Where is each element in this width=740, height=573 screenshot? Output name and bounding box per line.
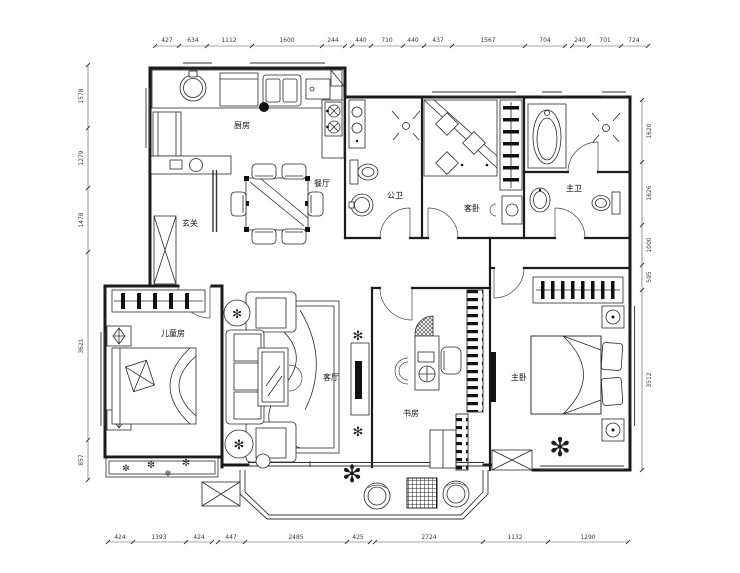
dim-top-11: 240 bbox=[574, 37, 586, 44]
guest-wardrobe bbox=[500, 100, 522, 190]
balcony-column-right bbox=[492, 450, 532, 470]
plant-icon: ✻ bbox=[342, 460, 362, 488]
room-dining: 餐厅 玄关 bbox=[182, 164, 330, 244]
floor-plan-page: 427 634 1112 1600 244 440 710 440 437 15… bbox=[0, 0, 740, 573]
kids-wardrobe bbox=[112, 290, 205, 312]
dimension-top: 427 634 1112 1600 244 440 710 440 437 15… bbox=[153, 37, 650, 48]
dimension-bottom: 424 1393 424 447 2485 425 2724 1132 1290 bbox=[106, 534, 630, 544]
dim-top-0: 427 bbox=[161, 37, 173, 44]
kitchen-cabinet bbox=[220, 73, 258, 106]
label-kitchen: 厨房 bbox=[234, 120, 250, 130]
plant-icon: ✻ bbox=[353, 329, 364, 344]
dim-left-4: 857 bbox=[78, 454, 85, 466]
master-nightstand-bottom bbox=[602, 419, 624, 441]
floor-plan-canvas: 427 634 1112 1600 244 440 710 440 437 15… bbox=[0, 0, 740, 573]
master-wardrobe bbox=[533, 277, 623, 303]
basin bbox=[349, 194, 373, 216]
dim-top-3: 1600 bbox=[279, 37, 294, 44]
flower-icon: ✼ bbox=[147, 460, 155, 471]
dim-right-2: 1000 bbox=[646, 237, 653, 252]
bathtub bbox=[528, 104, 566, 168]
label-entry: 玄关 bbox=[182, 218, 198, 228]
master-bed bbox=[531, 336, 623, 414]
armchair-bottom bbox=[246, 422, 296, 462]
kids-bed bbox=[112, 348, 196, 424]
dim-right-1: 1626 bbox=[646, 185, 653, 200]
fridge bbox=[153, 112, 181, 156]
guest-dresser bbox=[490, 196, 522, 224]
dim-bottom-1: 1393 bbox=[151, 534, 166, 541]
dim-top-12: 701 bbox=[599, 37, 611, 44]
room-study: 书房 bbox=[395, 290, 483, 470]
dim-bottom-0: 424 bbox=[114, 534, 126, 541]
dim-top-9: 1567 bbox=[480, 37, 495, 44]
kitchen-double-sink bbox=[263, 75, 301, 106]
room-living: ✻ ✻ ✻ ✻ ✻ 客厅 bbox=[224, 292, 369, 488]
dim-bottom-3: 447 bbox=[225, 534, 237, 541]
master-basin bbox=[530, 188, 550, 212]
flower-icon: ✼ bbox=[182, 458, 190, 469]
label-living: 客厅 bbox=[323, 372, 339, 382]
balcony-table bbox=[407, 478, 437, 508]
dim-top-6: 710 bbox=[381, 37, 393, 44]
room-kids: 儿童房 ✼ ✼ ✼ ✼ bbox=[107, 290, 205, 478]
entry-screen bbox=[213, 170, 217, 232]
dim-bottom-7: 1132 bbox=[507, 534, 522, 541]
dim-bottom-8: 1290 bbox=[580, 534, 595, 541]
dim-top-7: 440 bbox=[407, 37, 419, 44]
dim-right-4: 3512 bbox=[646, 372, 653, 387]
dim-top-1: 634 bbox=[187, 37, 199, 44]
label-dining: 餐厅 bbox=[314, 179, 330, 188]
entry-shaft bbox=[154, 216, 176, 284]
room-master-bedroom: ✻ 主卧 bbox=[491, 277, 624, 463]
dim-bottom-6: 2724 bbox=[421, 534, 436, 541]
room-guest-bath: 公卫 bbox=[349, 100, 420, 216]
plant-icon: ✻ bbox=[549, 433, 571, 463]
bookshelf bbox=[467, 290, 483, 412]
dim-right-0: 1620 bbox=[646, 123, 653, 138]
dimension-left: 1578 1279 1478 3621 857 bbox=[78, 63, 90, 482]
flower-icon: ✼ bbox=[122, 464, 130, 474]
dim-top-13: 724 bbox=[628, 37, 640, 44]
dim-top-2: 1112 bbox=[221, 37, 236, 44]
toilet bbox=[350, 160, 378, 184]
side-table-top: ✻ bbox=[224, 300, 250, 326]
dim-top-8: 437 bbox=[432, 37, 444, 44]
wall-tv bbox=[491, 352, 496, 402]
label-master-bath: 主卫 bbox=[566, 183, 582, 193]
dim-bottom-5: 425 bbox=[352, 534, 364, 541]
shower-icon-master bbox=[592, 113, 620, 142]
dim-top-4: 244 bbox=[327, 37, 339, 44]
dimension-right: 1620 1626 1000 595 3512 bbox=[640, 98, 653, 472]
plant-icon: ✻ bbox=[234, 438, 245, 453]
dim-left-2: 1478 bbox=[78, 212, 85, 227]
room-guest-bedroom: 客卧 bbox=[424, 100, 522, 224]
balcony-chair-left bbox=[364, 483, 390, 509]
shower-icon bbox=[392, 111, 420, 140]
study-shelf-strip bbox=[456, 414, 468, 470]
master-toilet bbox=[592, 192, 620, 214]
tv-bench bbox=[351, 343, 369, 415]
room-master-bath: 主卫 bbox=[528, 104, 620, 214]
flower-icon: ✼ bbox=[165, 469, 172, 478]
kitchen-faucet bbox=[259, 102, 269, 112]
dim-left-1: 1279 bbox=[78, 150, 85, 165]
master-nightstand-top bbox=[602, 306, 624, 328]
dim-left-3: 3621 bbox=[78, 338, 85, 353]
dim-top-10: 704 bbox=[539, 37, 551, 44]
plant-icon: ✻ bbox=[232, 307, 242, 321]
desk bbox=[415, 336, 439, 390]
armchair-top bbox=[246, 292, 296, 332]
balcony-column-left bbox=[202, 482, 240, 506]
kitchen-peninsula bbox=[151, 156, 231, 174]
gas-stove bbox=[325, 102, 342, 136]
balcony bbox=[364, 478, 469, 509]
dim-right-3: 595 bbox=[646, 271, 653, 283]
desk-chair bbox=[441, 347, 461, 374]
dim-left-0: 1578 bbox=[78, 88, 85, 103]
label-guest-bath: 公卫 bbox=[387, 191, 403, 200]
label-study: 书房 bbox=[403, 408, 419, 418]
dim-top-5: 440 bbox=[355, 37, 367, 44]
label-master-bedroom: 主卧 bbox=[511, 372, 527, 382]
small-chair bbox=[395, 358, 408, 384]
label-guest-bedroom: 客卧 bbox=[464, 203, 480, 213]
room-kitchen: 厨房 bbox=[151, 70, 344, 174]
kids-nightstand-top bbox=[107, 326, 131, 346]
dim-bottom-4: 2485 bbox=[288, 534, 303, 541]
balcony-chair-right bbox=[443, 481, 469, 507]
plant-icon: ✻ bbox=[353, 425, 364, 440]
dim-bottom-2: 424 bbox=[193, 534, 205, 541]
label-kids: 儿童房 bbox=[161, 328, 185, 338]
